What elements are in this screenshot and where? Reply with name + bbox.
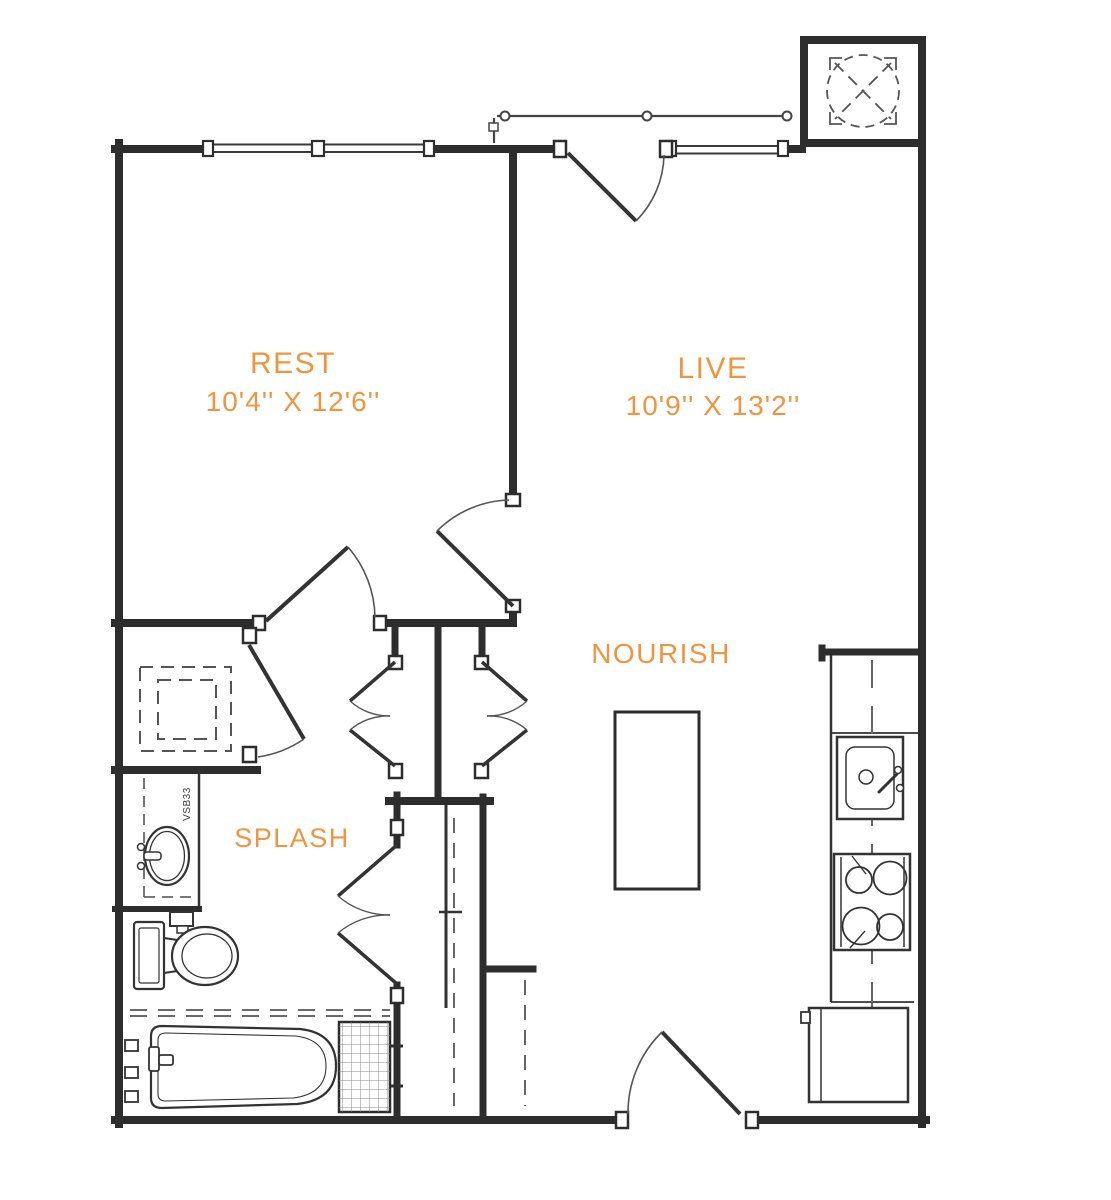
floor-plan-page: REST 10'4'' X 12'6'' LIVE 10'9'' X 13'2'… — [0, 0, 1111, 1200]
live-room-dimensions: 10'9'' X 13'2'' — [626, 390, 801, 421]
splash-room-label: SPLASH — [234, 823, 350, 853]
shower-tile-niche — [339, 1022, 403, 1112]
entry-door-bottom — [628, 1032, 740, 1114]
floor-plan-svg: REST 10'4'' X 12'6'' LIVE 10'9'' X 13'2'… — [0, 0, 1111, 1200]
bedroom-door — [437, 500, 513, 606]
mechanical-shaft — [804, 40, 922, 143]
bathroom-double-doors — [338, 845, 397, 984]
room-labels: REST 10'4'' X 12'6'' LIVE 10'9'' X 13'2'… — [182, 347, 800, 853]
exterior-walls — [115, 143, 926, 1124]
closet-double-doors-east — [482, 662, 527, 766]
kitchen-island — [615, 712, 699, 889]
interior-walls — [115, 153, 922, 1120]
nourish-room-label: NOURISH — [591, 638, 731, 669]
balcony-railing — [489, 112, 792, 144]
range-cooktop — [834, 854, 910, 950]
toilet — [134, 922, 238, 989]
washer-dryer-closet — [140, 645, 304, 757]
refrigerator — [801, 1008, 908, 1102]
kitchen-sink — [837, 737, 904, 819]
rest-room-dimensions: 10'4'' X 12'6'' — [206, 386, 381, 417]
closet-double-doors-west — [350, 662, 395, 766]
rest-room-label: REST — [250, 347, 336, 380]
entry-door-top — [554, 141, 672, 221]
vanity-model-label: VSB33 — [182, 787, 193, 821]
hall-door — [266, 547, 375, 621]
live-room-label: LIVE — [677, 352, 748, 385]
